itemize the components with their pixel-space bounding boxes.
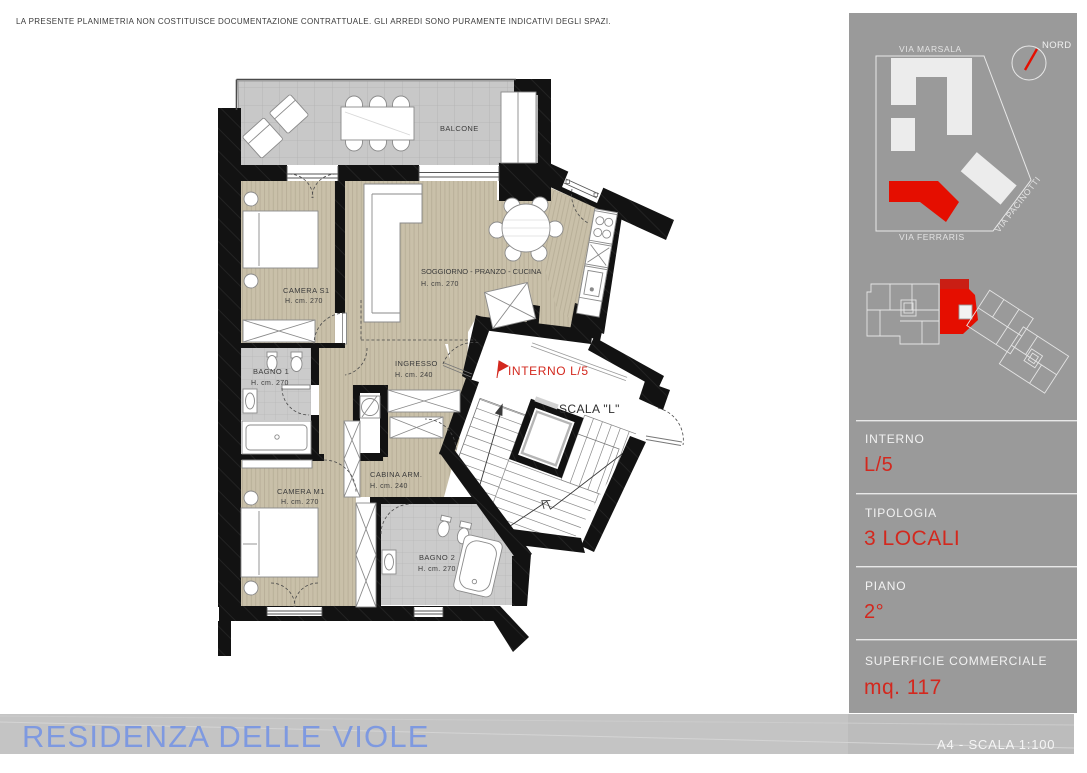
svg-text:VIA MARSALA: VIA MARSALA [899, 44, 962, 54]
svg-text:H. cm. 270: H. cm. 270 [418, 566, 456, 573]
svg-text:L/5: L/5 [864, 454, 893, 476]
svg-text:H. cm. 240: H. cm. 240 [395, 372, 433, 379]
svg-text:CAMERA S1: CAMERA S1 [283, 286, 330, 295]
svg-text:H. cm. 240: H. cm. 240 [370, 483, 408, 490]
svg-text:H. cm. 270: H. cm. 270 [285, 298, 323, 305]
svg-text:H. cm. 270: H. cm. 270 [281, 499, 319, 506]
svg-text:CAMERA M1: CAMERA M1 [277, 487, 325, 496]
svg-text:VIA FERRARIS: VIA FERRARIS [899, 232, 965, 242]
svg-text:SCALA "L": SCALA "L" [559, 402, 620, 416]
svg-text:INTERNO L/5: INTERNO L/5 [508, 364, 589, 378]
svg-text:INGRESSO: INGRESSO [395, 359, 438, 368]
svg-text:LA PRESENTE PLANIMETRIA NON CO: LA PRESENTE PLANIMETRIA NON COSTITUISCE … [16, 17, 611, 26]
svg-text:H. cm. 270: H. cm. 270 [421, 281, 459, 288]
svg-text:TIPOLOGIA: TIPOLOGIA [865, 506, 937, 520]
svg-text:2°: 2° [864, 601, 884, 623]
svg-text:BAGNO 1: BAGNO 1 [253, 367, 289, 376]
svg-text:SUPERFICIE COMMERCIALE: SUPERFICIE COMMERCIALE [865, 654, 1047, 668]
svg-text:BAGNO 2: BAGNO 2 [419, 553, 455, 562]
svg-text:INTERNO: INTERNO [865, 432, 925, 446]
svg-text:mq. 117: mq. 117 [864, 676, 942, 699]
svg-text:PIANO: PIANO [865, 579, 906, 593]
svg-text:BALCONE: BALCONE [440, 124, 479, 133]
svg-text:NORD: NORD [1042, 40, 1072, 51]
svg-text:A4 - SCALA 1:100: A4 - SCALA 1:100 [937, 737, 1055, 752]
svg-text:SOGGIORNO - PRANZO - CUCINA: SOGGIORNO - PRANZO - CUCINA [421, 267, 541, 276]
svg-text:3 LOCALI: 3 LOCALI [864, 527, 960, 550]
svg-text:H. cm. 270: H. cm. 270 [251, 380, 289, 387]
svg-text:CABINA ARM.: CABINA ARM. [370, 470, 422, 479]
svg-text:RESIDENZA DELLE VIOLE: RESIDENZA DELLE VIOLE [22, 719, 430, 754]
